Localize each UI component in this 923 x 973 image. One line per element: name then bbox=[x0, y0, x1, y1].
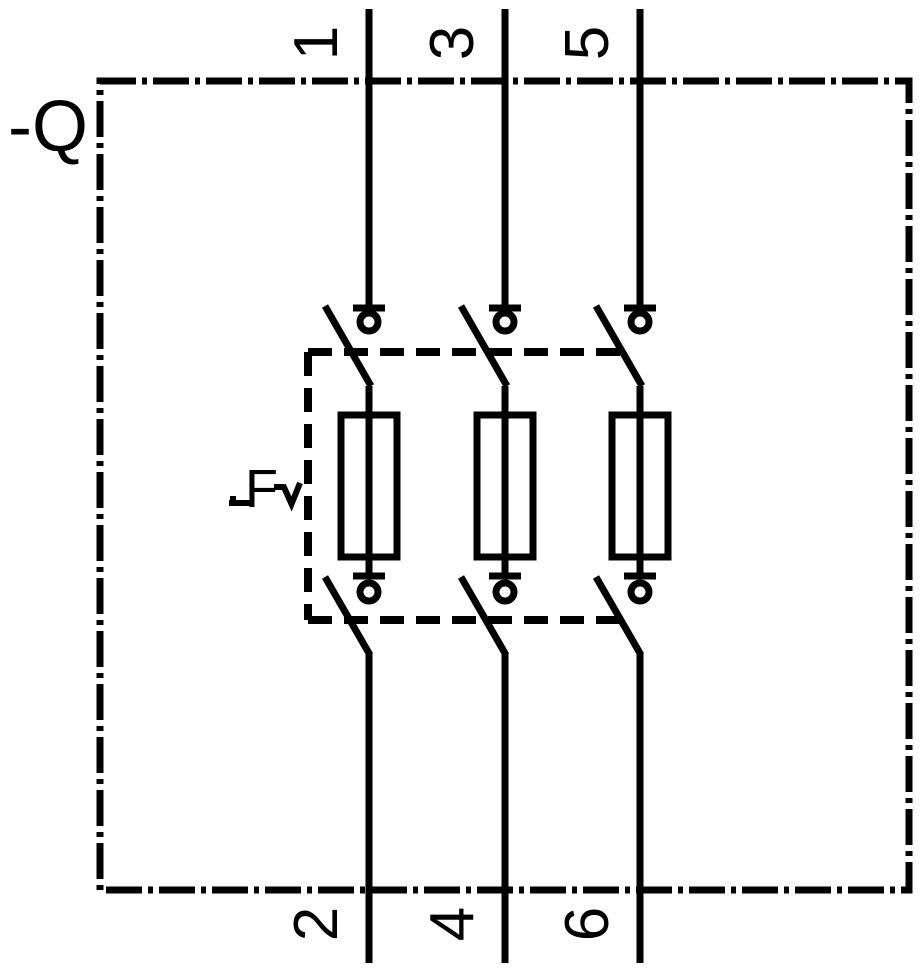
pole-1-contact-circle-bottom bbox=[360, 583, 378, 601]
terminal-label-1: 1 bbox=[282, 26, 351, 60]
pole-1-contact-circle-top bbox=[360, 313, 378, 331]
terminal-label-2: 2 bbox=[282, 907, 351, 941]
pole-3-contact-circle-bottom bbox=[631, 583, 649, 601]
switch-fuse-schematic: -Q F 1 2 bbox=[0, 0, 923, 973]
terminal-label-5: 5 bbox=[553, 26, 622, 60]
pole-3-contact-circle-top bbox=[631, 313, 649, 331]
device-label: -Q bbox=[8, 87, 88, 167]
pole-2-contact-circle-bottom bbox=[496, 583, 514, 601]
terminal-label-6: 6 bbox=[553, 907, 622, 941]
schematic-canvas: -Q F 1 2 bbox=[0, 0, 923, 973]
pole-2-contact-circle-top bbox=[496, 313, 514, 331]
terminal-label-3: 3 bbox=[418, 26, 487, 60]
pole-2: 3 4 bbox=[418, 9, 533, 963]
fuse-label-v-mark bbox=[283, 483, 300, 504]
pole-3: 5 6 bbox=[553, 9, 668, 963]
fuse-label: F bbox=[245, 459, 278, 519]
fuse-unit-label-group: F bbox=[229, 459, 300, 519]
terminal-label-4: 4 bbox=[418, 907, 487, 941]
